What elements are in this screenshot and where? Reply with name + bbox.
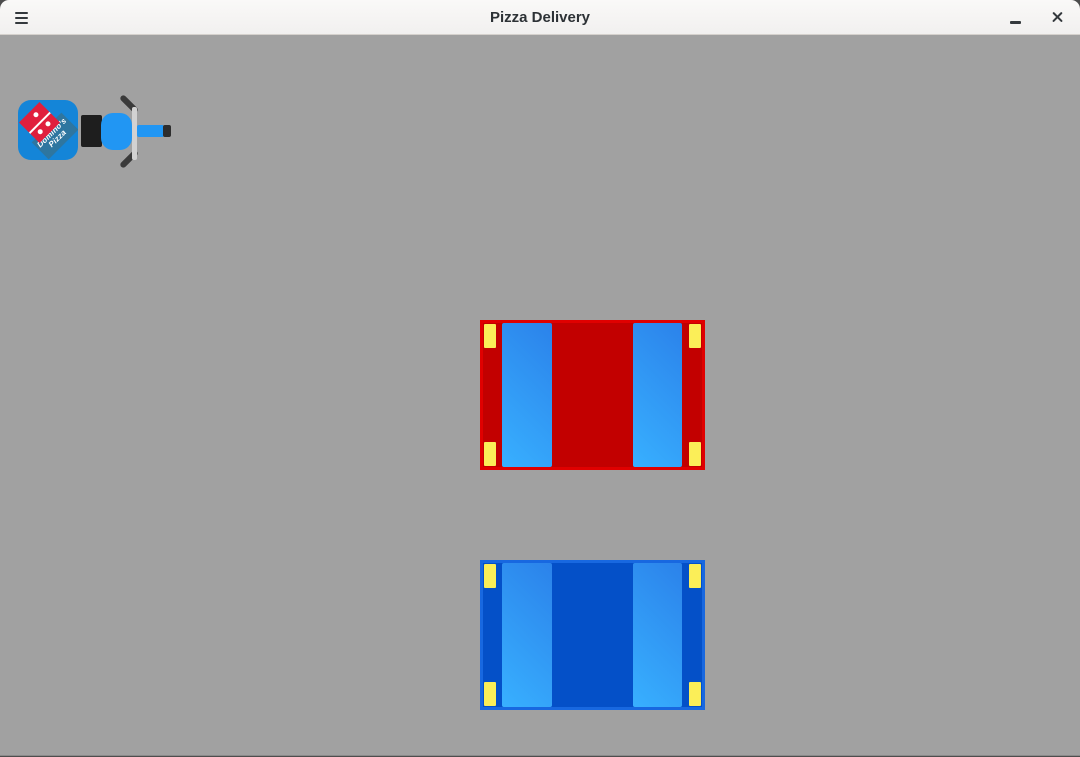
minimize-icon: [1010, 21, 1021, 23]
blue-car-rear-window: [633, 563, 682, 707]
window-title: Pizza Delivery: [490, 9, 590, 26]
delivery-scooter[interactable]: Domino's Pizza: [18, 96, 178, 172]
red-car-taillight-left: [689, 324, 701, 348]
scooter-front-wheel-tip: [163, 125, 171, 137]
blue-car[interactable]: [480, 560, 705, 710]
blue-car-headlight-right: [484, 682, 496, 706]
close-icon: [1051, 11, 1064, 24]
minimize-button[interactable]: [1002, 5, 1028, 31]
close-button[interactable]: [1044, 5, 1070, 31]
red-car-windshield: [502, 323, 552, 467]
red-car[interactable]: [480, 320, 705, 470]
red-car-headlight-right: [484, 442, 496, 466]
pizza-box: Domino's Pizza: [18, 100, 78, 160]
red-car-rear-window: [633, 323, 682, 467]
game-canvas[interactable]: Domino's Pizza: [0, 35, 1080, 756]
scooter-seat: [81, 115, 102, 147]
scooter-rider-body: [101, 113, 132, 150]
hamburger-menu-button[interactable]: [8, 5, 34, 31]
titlebar: Pizza Delivery: [0, 0, 1080, 35]
hamburger-menu-icon: [15, 12, 28, 14]
scooter-front-wheel: [137, 125, 164, 137]
blue-car-taillight-right: [689, 682, 701, 706]
pizza-delivery-window: Pizza Delivery Domino's Pizza: [0, 0, 1080, 757]
window-controls: [1002, 0, 1070, 35]
blue-car-headlight-left: [484, 564, 496, 588]
blue-car-windshield: [502, 563, 552, 707]
red-car-headlight-left: [484, 324, 496, 348]
blue-car-taillight-left: [689, 564, 701, 588]
red-car-taillight-right: [689, 442, 701, 466]
